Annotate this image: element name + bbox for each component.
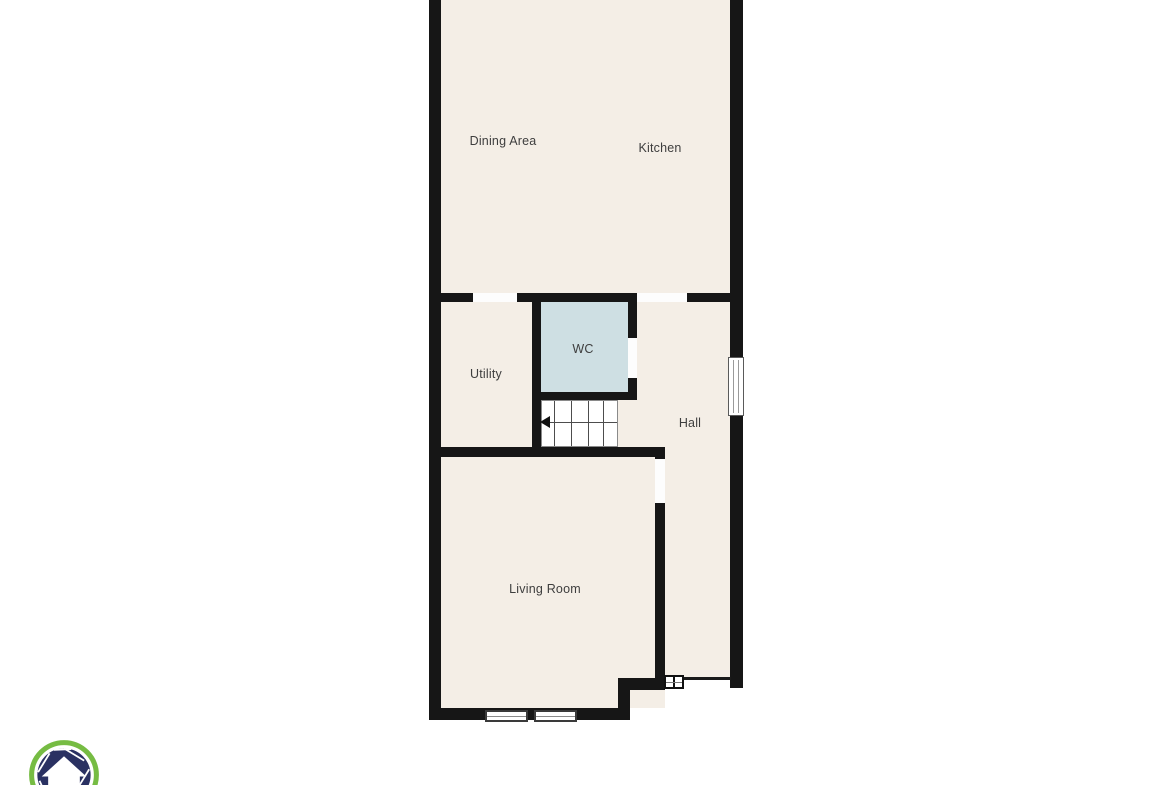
wall-living-top <box>429 447 665 457</box>
stair-direction-line <box>548 422 617 423</box>
room-label-wc: WC <box>572 342 593 356</box>
room-label-living-room: Living Room <box>509 582 581 596</box>
room-label-dining-area: Dining Area <box>470 134 537 148</box>
stair-direction-arrow-icon <box>540 416 550 428</box>
stair-tread-line <box>571 401 572 446</box>
living-room-window-icon <box>485 710 528 722</box>
wall-bottom <box>429 708 630 720</box>
wall-right-upper <box>730 0 743 357</box>
window-pane-line <box>536 716 575 717</box>
wall-mid-horizontal-a <box>441 293 473 302</box>
wall-mid-horizontal-c <box>687 293 730 302</box>
stair-tread-line <box>554 401 555 446</box>
doorway-kitchen-hall <box>637 293 687 302</box>
doorway-living-room <box>655 459 665 503</box>
floorplan-canvas: Dining Area Kitchen Utility WC Hall Livi… <box>0 0 1170 785</box>
room-label-kitchen: Kitchen <box>638 141 681 155</box>
hall-bottom-edge <box>683 677 731 680</box>
room-label-hall: Hall <box>679 416 701 430</box>
living-room-window-icon <box>534 710 577 722</box>
wall-mid-horizontal-b <box>517 293 637 302</box>
room-label-utility: Utility <box>470 367 502 381</box>
wall-wc-bottom <box>537 392 637 400</box>
window-pane-line <box>487 716 526 717</box>
staircase <box>541 400 618 447</box>
wall-wc-left <box>532 302 541 457</box>
doorway-utility <box>473 293 517 302</box>
wall-right-lower <box>730 416 743 688</box>
window-pane-line <box>733 360 734 413</box>
hall-entrance-door-icon <box>664 675 684 689</box>
wall-step-vertical <box>618 678 630 718</box>
wall-wc-right-upper <box>628 302 637 338</box>
hall-window-icon <box>728 357 744 416</box>
wall-living-right-stub <box>655 447 665 459</box>
wall-living-right <box>655 503 665 688</box>
aperture-house-logo-icon <box>28 737 100 785</box>
stair-tread-line <box>603 401 604 446</box>
doorway-wc <box>628 338 637 378</box>
door-bar <box>666 682 682 683</box>
stair-tread-line <box>588 401 589 446</box>
wall-left <box>429 0 441 720</box>
window-pane-line <box>738 360 739 413</box>
